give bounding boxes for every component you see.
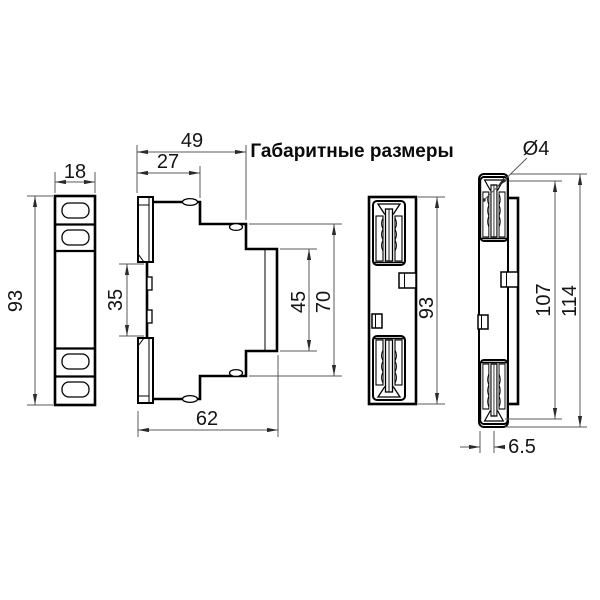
dim-label-27: 27 [157, 151, 179, 173]
dim-label-49: 49 [181, 130, 203, 152]
front-view [55, 196, 95, 405]
dim-label-62: 62 [196, 408, 218, 430]
dim-label-18: 18 [64, 161, 86, 183]
screw-slot-edge [183, 199, 198, 206]
dim-label-114: 114 [559, 285, 581, 317]
terminal-block [480, 360, 507, 424]
dim-label-93-left: 93 [5, 290, 27, 312]
drawing-title: Габаритные размеры [250, 141, 453, 162]
dim-label-45: 45 [288, 291, 310, 313]
latch-tab-left [478, 315, 488, 329]
latch-tab-left [372, 314, 382, 328]
dim-label-6-5: 6.5 [508, 436, 536, 458]
vent-slot [62, 203, 89, 218]
dim-label-70: 70 [313, 291, 335, 313]
screw-slot-edge [230, 370, 243, 377]
side-profile-view [138, 197, 277, 403]
vent-slot [62, 354, 89, 369]
vent-slot [62, 230, 89, 245]
side-edge-view [478, 174, 518, 427]
terminal-block [373, 201, 405, 265]
din-clip-bottom [138, 338, 153, 403]
dim-front-panel: 45 [280, 249, 317, 351]
rear-view [369, 197, 416, 404]
dim-din-recess: 35 [105, 264, 144, 336]
dim-label-107: 107 [533, 283, 555, 316]
dim-front-height: 93 [5, 196, 53, 405]
dim-label-dia4: Ø4 [523, 138, 550, 160]
dim-rear-height: 93 [416, 197, 445, 404]
latch-tab-right [399, 273, 416, 288]
latch-tab-right [501, 272, 518, 287]
terminal-block [373, 336, 405, 400]
dim-label-93-right: 93 [416, 297, 438, 319]
screw-slot-edge [183, 396, 198, 403]
dim-hole-diameter: Ø4 [482, 138, 549, 202]
dimension-drawing: Габаритные размеры 18 93 [0, 0, 600, 600]
screw-slot-edge [230, 224, 243, 231]
terminal-block [480, 177, 507, 241]
dim-upper-depth: 27 [137, 151, 200, 198]
dim-front-width: 18 [55, 161, 95, 193]
din-clip-top [138, 197, 153, 262]
vent-slot [62, 382, 89, 397]
dim-label-35: 35 [105, 289, 127, 311]
drawing-canvas: Габаритные размеры 18 93 [0, 0, 600, 600]
dim-panel-thickness: 6.5 [460, 431, 536, 458]
